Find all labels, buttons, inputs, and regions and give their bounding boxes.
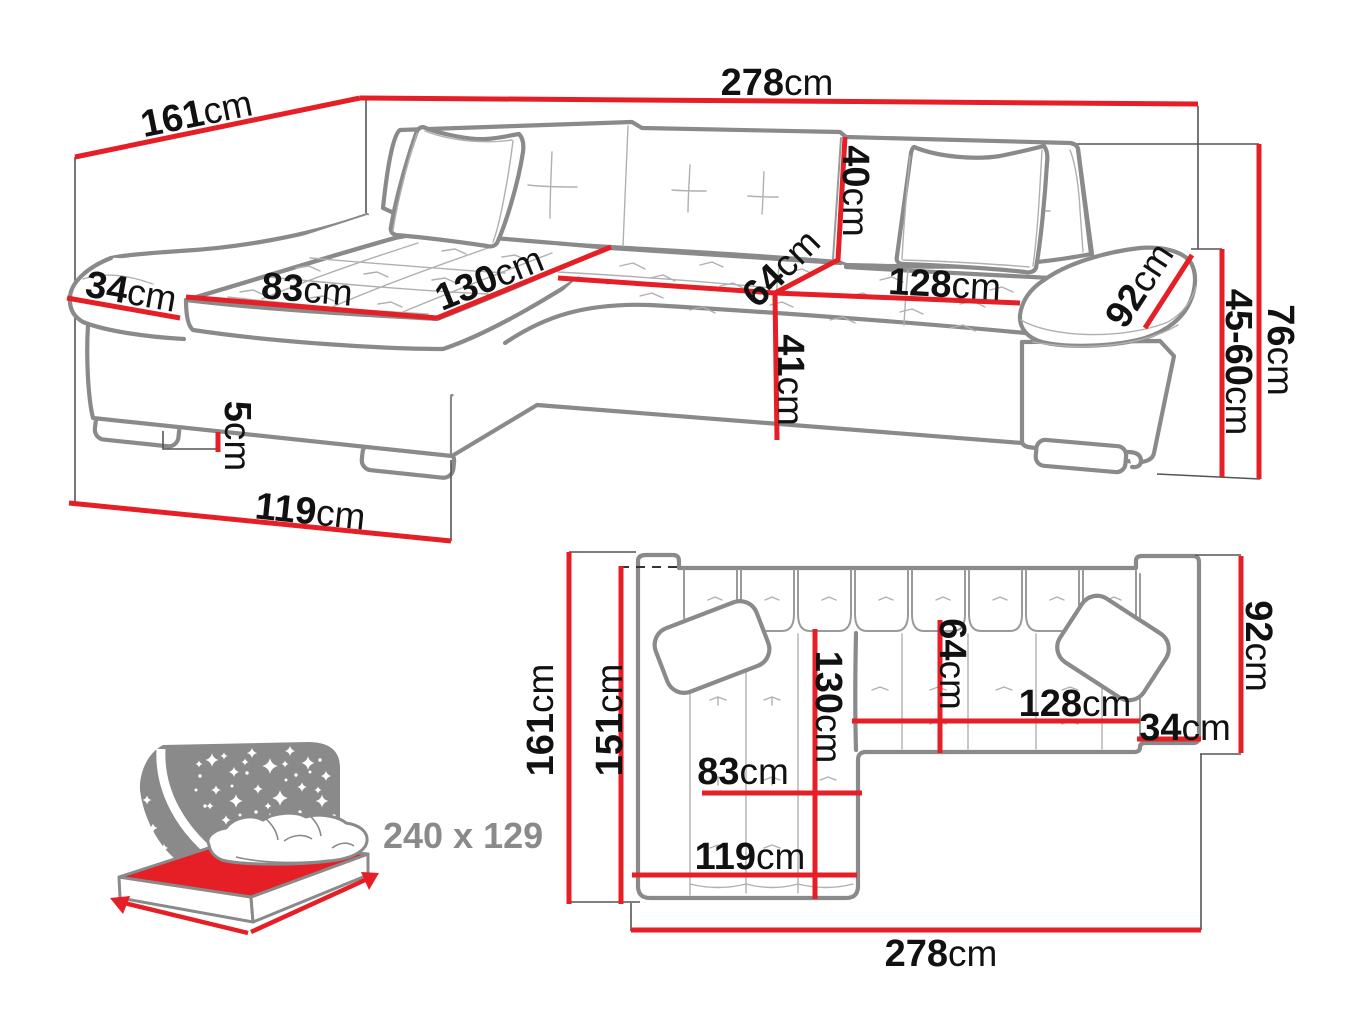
svg-text:64cm: 64cm bbox=[931, 618, 973, 710]
svg-text:161cm: 161cm bbox=[137, 82, 256, 146]
svg-text:151cm: 151cm bbox=[589, 664, 631, 777]
svg-text:34cm: 34cm bbox=[1139, 707, 1231, 749]
svg-text:83cm: 83cm bbox=[260, 265, 355, 315]
svg-text:161cm: 161cm bbox=[520, 664, 562, 777]
svg-text:45-60cm: 45-60cm bbox=[1217, 289, 1259, 436]
svg-text:278cm: 278cm bbox=[721, 62, 834, 104]
svg-text:128cm: 128cm bbox=[887, 261, 1002, 309]
svg-text:92cm: 92cm bbox=[1237, 600, 1279, 692]
svg-text:5cm: 5cm bbox=[216, 401, 258, 471]
svg-text:76cm: 76cm bbox=[1259, 304, 1301, 396]
svg-text:128cm: 128cm bbox=[1019, 683, 1132, 725]
svg-text:41cm: 41cm bbox=[769, 334, 811, 426]
svg-text:40cm: 40cm bbox=[834, 145, 876, 237]
svg-text:278cm: 278cm bbox=[885, 933, 998, 975]
svg-text:119cm: 119cm bbox=[695, 836, 806, 878]
svg-text:130cm: 130cm bbox=[807, 651, 849, 764]
svg-text:240 x 129: 240 x 129 bbox=[383, 815, 543, 856]
svg-text:119cm: 119cm bbox=[253, 485, 367, 538]
svg-text:83cm: 83cm bbox=[697, 751, 789, 793]
